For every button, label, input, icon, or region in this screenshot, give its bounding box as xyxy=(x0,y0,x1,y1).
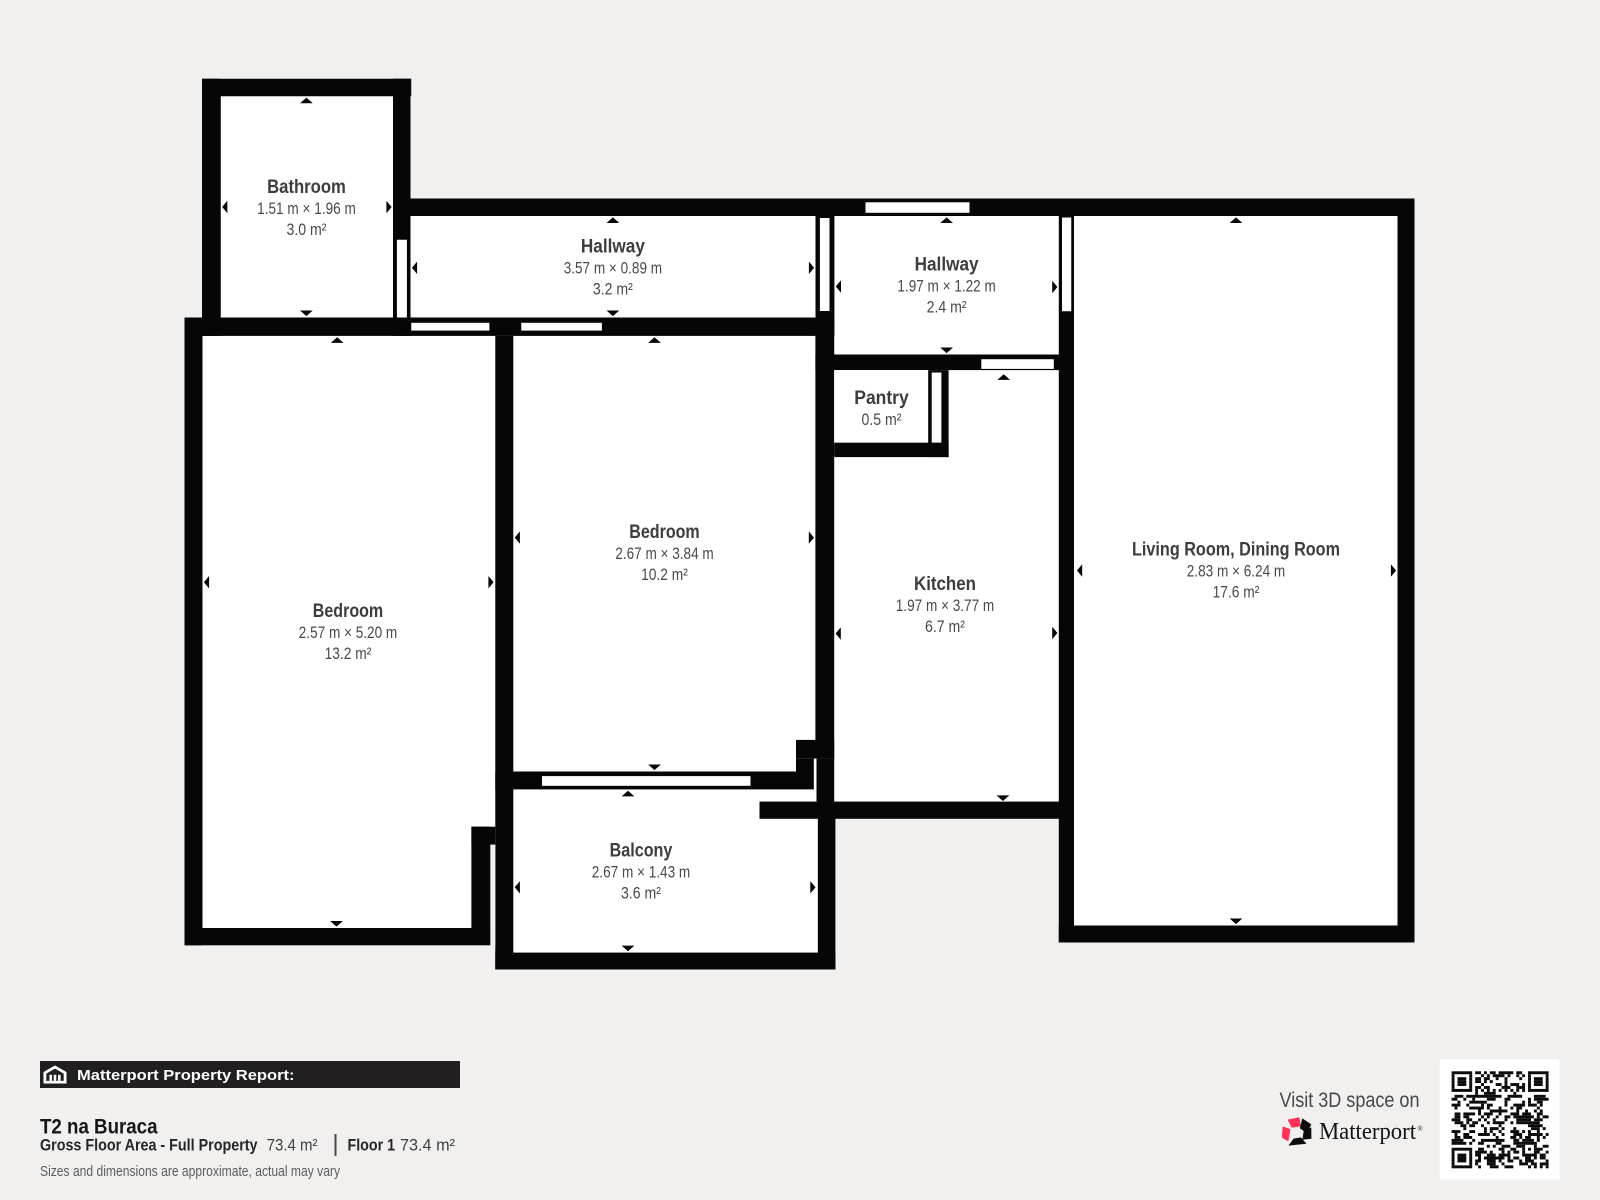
svg-text:3.0 m²: 3.0 m² xyxy=(287,220,327,239)
svg-text:Matterport Property Report:: Matterport Property Report: xyxy=(77,1067,295,1084)
svg-text:17.6 m²: 17.6 m² xyxy=(1213,583,1260,602)
svg-text:10.2 m²: 10.2 m² xyxy=(641,565,688,584)
svg-text:1.97 m × 1.22 m: 1.97 m × 1.22 m xyxy=(897,277,995,296)
svg-text:Bedroom: Bedroom xyxy=(313,601,383,622)
svg-text:2.4 m²: 2.4 m² xyxy=(927,298,967,317)
svg-text:6.7 m²: 6.7 m² xyxy=(925,617,965,636)
svg-text:Balcony: Balcony xyxy=(610,841,673,862)
svg-text:Bedroom: Bedroom xyxy=(629,522,699,543)
svg-text:3.57 m × 0.89 m: 3.57 m × 0.89 m xyxy=(564,259,662,278)
svg-text:Visit 3D space on: Visit 3D space on xyxy=(1280,1089,1420,1112)
svg-text:13.2 m²: 13.2 m² xyxy=(325,644,372,663)
svg-text:1.51 m × 1.96 m: 1.51 m × 1.96 m xyxy=(257,199,356,218)
svg-text:2.67 m × 1.43 m: 2.67 m × 1.43 m xyxy=(592,863,691,882)
svg-text:Hallway: Hallway xyxy=(581,237,645,258)
svg-text:3.6 m²: 3.6 m² xyxy=(621,884,661,903)
svg-text:Bathroom: Bathroom xyxy=(267,177,346,198)
svg-text:Living Room, Dining Room: Living Room, Dining Room xyxy=(1132,540,1340,561)
svg-text:0.5 m²: 0.5 m² xyxy=(862,410,902,429)
svg-text:2.57 m × 5.20 m: 2.57 m × 5.20 m xyxy=(299,623,398,642)
svg-text:1.97 m × 3.77 m: 1.97 m × 3.77 m xyxy=(896,596,995,615)
svg-text:Matterport: Matterport xyxy=(1319,1119,1416,1145)
svg-text:Floor 173.4 m²: Floor 173.4 m² xyxy=(348,1135,456,1154)
svg-text:3.2 m²: 3.2 m² xyxy=(593,280,633,299)
svg-text:Sizes and dimensions are appro: Sizes and dimensions are approximate, ac… xyxy=(40,1163,340,1180)
svg-text:Gross Floor Area - Full Proper: Gross Floor Area - Full Property 73.4 m² xyxy=(40,1135,318,1154)
svg-text:Hallway: Hallway xyxy=(915,255,979,276)
svg-text:Pantry: Pantry xyxy=(854,388,909,409)
svg-text:®: ® xyxy=(1418,1125,1424,1133)
svg-text:2.67 m × 3.84 m: 2.67 m × 3.84 m xyxy=(615,544,714,563)
svg-text:Kitchen: Kitchen xyxy=(914,574,976,595)
svg-text:2.83 m × 6.24 m: 2.83 m × 6.24 m xyxy=(1187,562,1286,581)
